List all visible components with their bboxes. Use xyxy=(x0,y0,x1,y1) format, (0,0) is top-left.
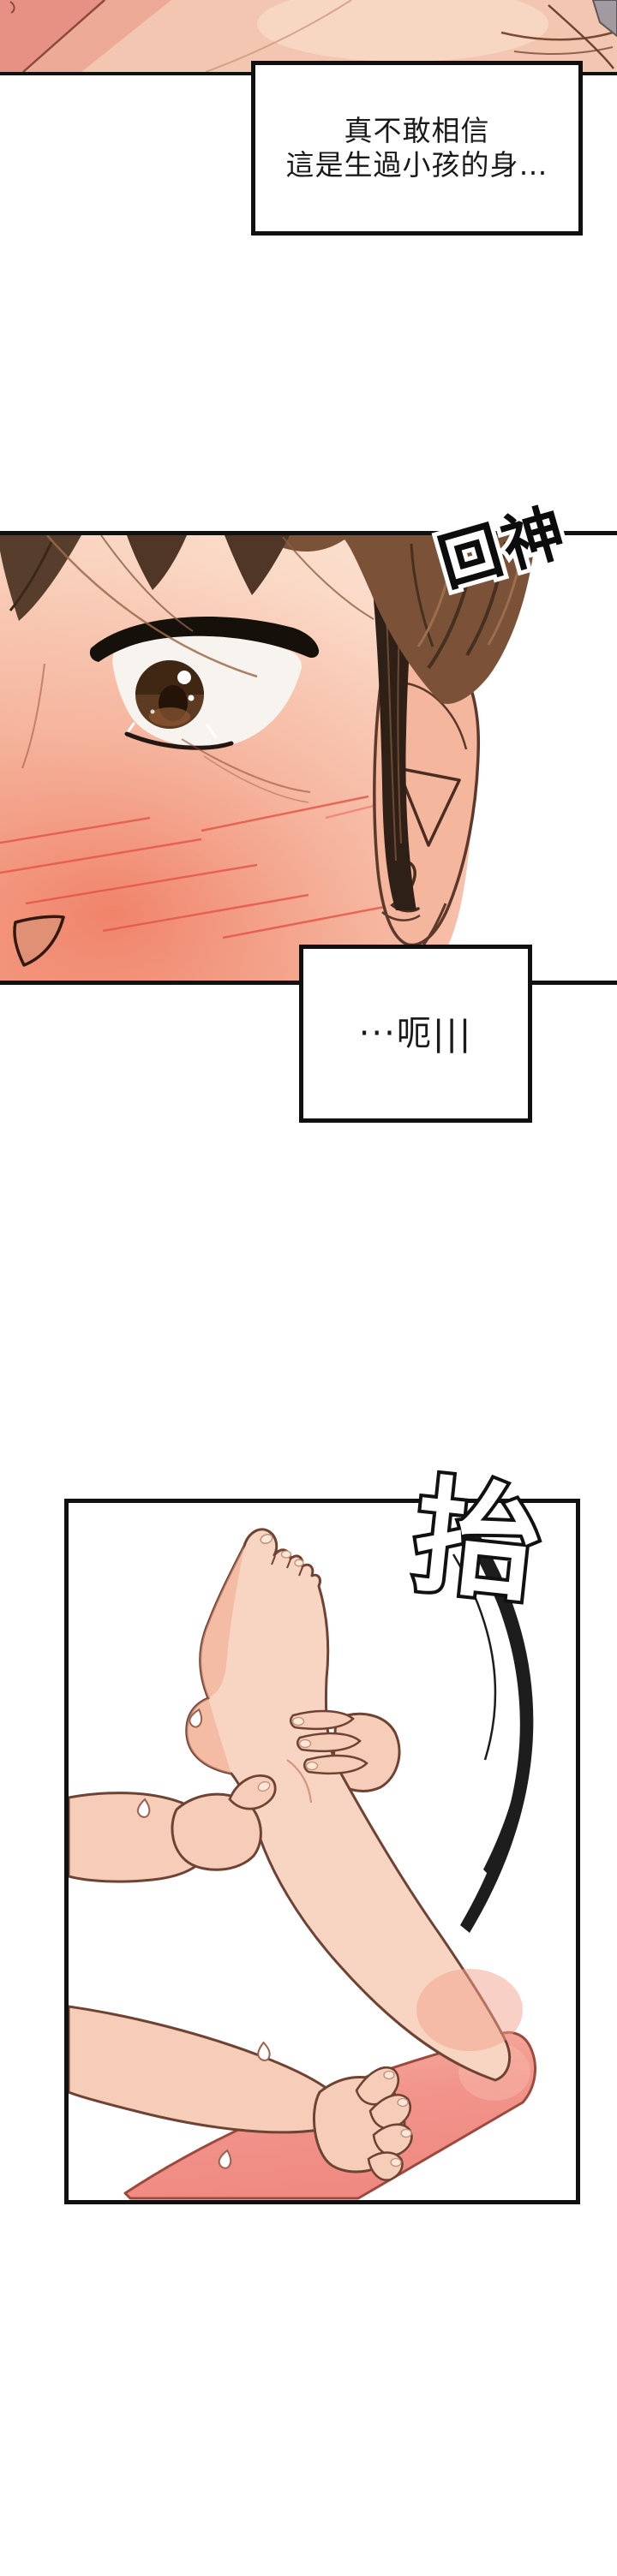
comic-page: 真不敢相信 這是生過小孩的身… ···呃||| 回神 抬 xyxy=(0,0,617,2576)
face-art xyxy=(0,535,617,981)
motion-swoosh xyxy=(453,1527,533,1933)
face-skin xyxy=(0,535,617,981)
speech-bubble-1: 真不敢相信 這是生過小孩的身… xyxy=(251,61,583,236)
speech-line: ···呃||| xyxy=(359,1017,473,1051)
panel-face-closeup xyxy=(0,531,617,985)
speech-bubble-2: ···呃||| xyxy=(299,945,532,1123)
calf-arm-hand xyxy=(69,1775,275,1881)
speech-line: 這是生過小孩的身… xyxy=(286,148,548,182)
legs-art xyxy=(69,1503,576,2200)
speech-line: 真不敢相信 xyxy=(344,114,490,148)
panel-leg-lift xyxy=(64,1499,580,2204)
